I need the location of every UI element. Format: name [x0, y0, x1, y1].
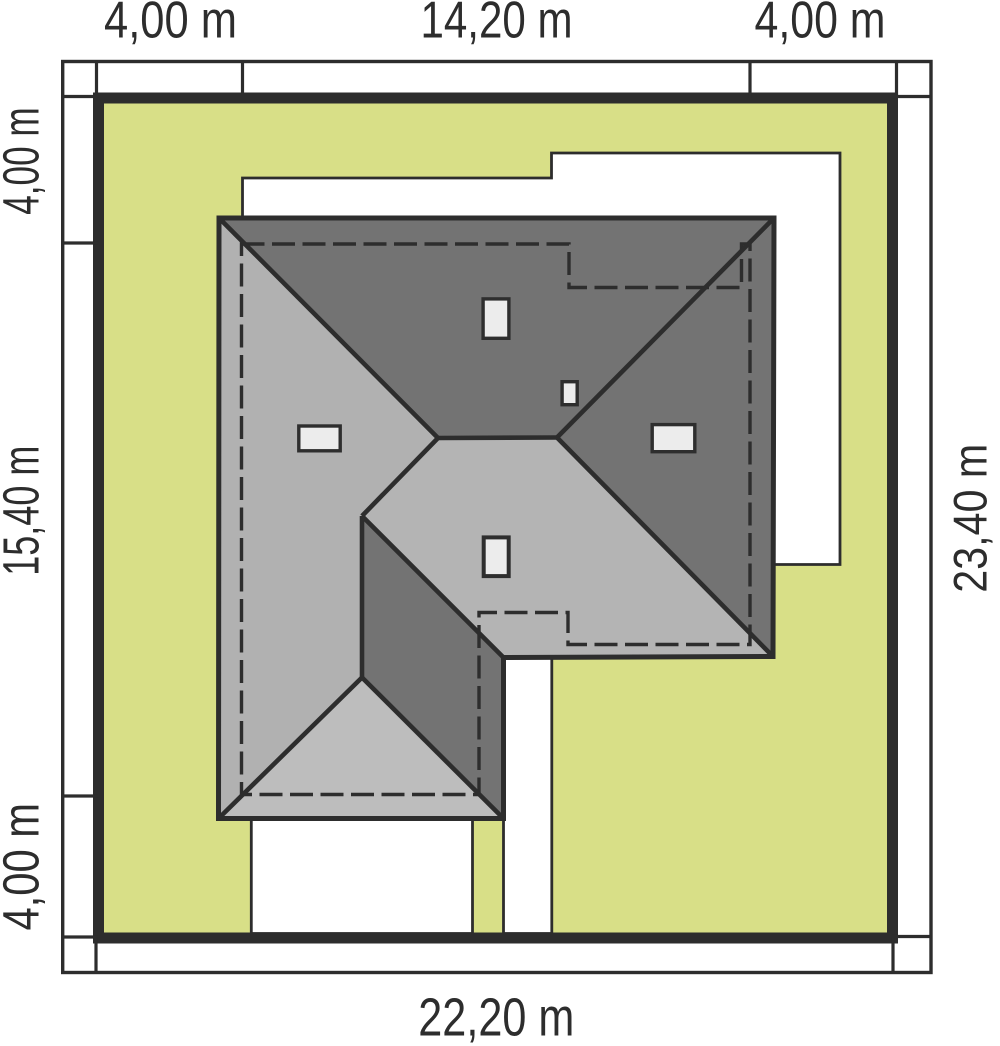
svg-text:4,00 m: 4,00 m [0, 803, 50, 931]
svg-text:14,20 m: 14,20 m [421, 0, 573, 50]
svg-text:22,20 m: 22,20 m [418, 988, 574, 1046]
svg-text:23,40 m: 23,40 m [944, 444, 997, 593]
svg-text:4,00 m: 4,00 m [104, 0, 237, 50]
svg-text:4,00 m: 4,00 m [0, 107, 50, 215]
svg-text:15,40 m: 15,40 m [0, 446, 50, 576]
svg-text:4,00 m: 4,00 m [755, 0, 886, 50]
